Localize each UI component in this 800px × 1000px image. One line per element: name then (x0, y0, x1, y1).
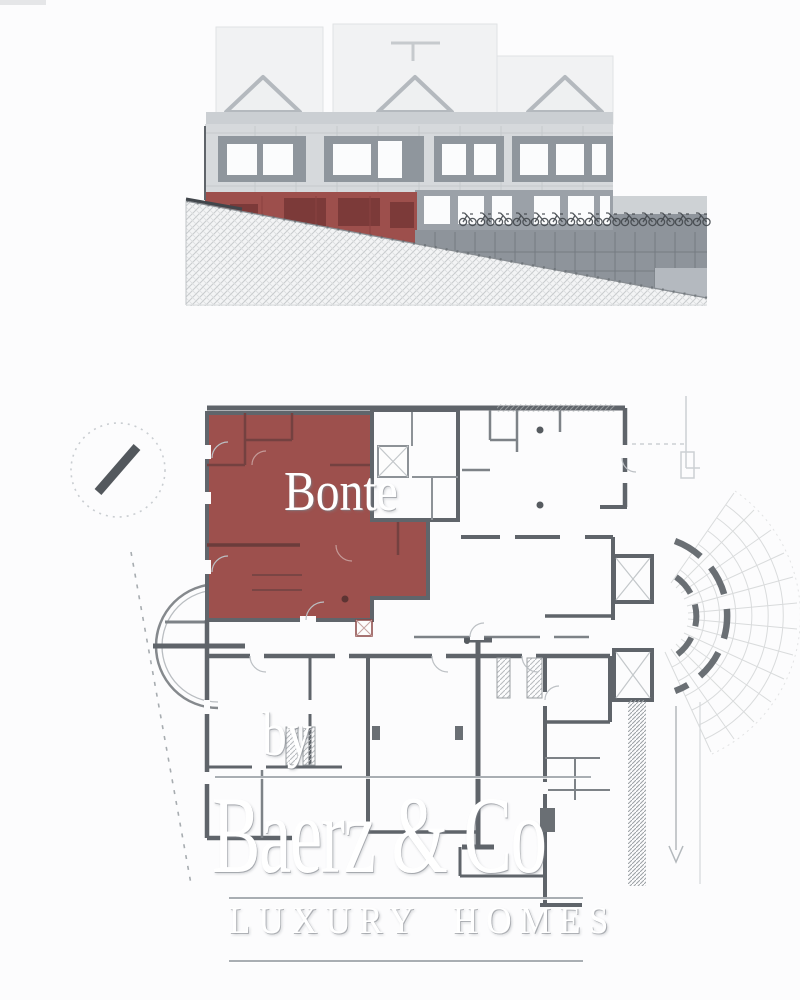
building-elevation (186, 24, 710, 306)
listing-image: Bonte by Baerz & Co LUXURY HOMES (0, 0, 800, 1000)
site-boundary-dashed (131, 552, 191, 884)
watermark-by-label: by (262, 704, 312, 766)
ramp-hatch (628, 700, 646, 886)
watermark-agent-name: Bonte (284, 464, 398, 520)
watermark-brand-name: Baerz & Co (212, 780, 546, 890)
scan-edge-artifact (0, 0, 46, 5)
down-arrow-icon (669, 706, 683, 862)
north-arrow-icon (71, 423, 165, 517)
watermark-tagline: LUXURY HOMES (229, 902, 617, 940)
closets (286, 658, 542, 765)
watermark-rule-middle (229, 897, 583, 899)
right-shafts (614, 556, 652, 700)
site-lines (632, 396, 700, 478)
hatched-wall (497, 404, 615, 412)
facade-windows-lower (415, 190, 613, 232)
watermark-rule-bottom (229, 960, 583, 962)
facade-windows-upper (218, 136, 613, 182)
ramp (628, 700, 700, 886)
terrace-fan (665, 491, 800, 754)
